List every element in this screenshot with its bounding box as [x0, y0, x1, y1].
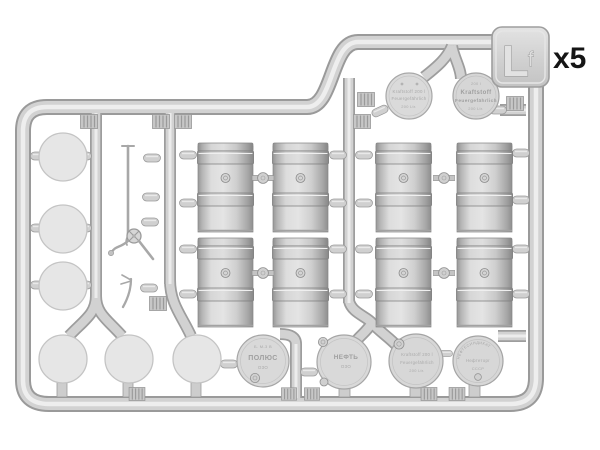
- lid-text: О3О: [258, 365, 268, 370]
- embossed-lid-bottom-1: Б. М-3 В ПОЛЮС О3О: [237, 335, 289, 387]
- lid-text: 200 Ltr.: [409, 368, 424, 373]
- lid-text: Нефтеторг: [466, 358, 490, 363]
- lid-text: СССР: [472, 366, 485, 371]
- embossed-lid-top-1: Kraftstoff 200 l Feuergefährlich 200 Ltr…: [386, 73, 432, 119]
- lid-text: 200 l: [471, 81, 481, 86]
- sprue-letter-small: f: [528, 49, 534, 71]
- embossed-lid-bottom-2: НЕФТЬ О3О: [317, 335, 371, 389]
- pump-nozzle-part: [121, 275, 131, 307]
- sprue-drawing: Kraftstoff 200 l Feuergefährlich 200 Ltr…: [0, 0, 600, 450]
- embossed-lid-bottom-4: НЕФТЕСИНДИКАТ Нефтеторг СССР: [453, 336, 503, 386]
- pump-crank-part: [108, 229, 153, 259]
- sprue-letter-tab: L f: [492, 27, 549, 87]
- quantity-label: x5: [553, 42, 586, 75]
- lid-text: Feuergefährlich: [400, 360, 434, 365]
- lid-text: ПОЛЮС: [248, 355, 277, 362]
- lid-text: Kraftstoff 200 l: [401, 352, 433, 357]
- embossed-lid-bottom-3: Kraftstoff 200 l Feuergefährlich 200 Ltr…: [389, 334, 443, 388]
- lid-text: НЕФТЬ: [334, 354, 359, 361]
- lid-text: Kraftstoff: [461, 90, 493, 96]
- lid-text: 200 Ltr.: [401, 104, 416, 109]
- lid-text: Б. М-3 В: [254, 344, 272, 349]
- lid-text: Feuergefährlich: [391, 96, 426, 101]
- plain-drum-ends: [39, 133, 221, 383]
- lid-text: Kraftstoff 200 l: [392, 89, 425, 94]
- lid-text: О3О: [341, 364, 351, 369]
- lid-text: Feuergefährlich: [455, 98, 497, 104]
- model-sprue-image: Kraftstoff 200 l Feuergefährlich 200 Ltr…: [0, 0, 600, 450]
- sprue-letter: L: [502, 37, 529, 86]
- lid-text: 200 Ltr.: [468, 106, 483, 111]
